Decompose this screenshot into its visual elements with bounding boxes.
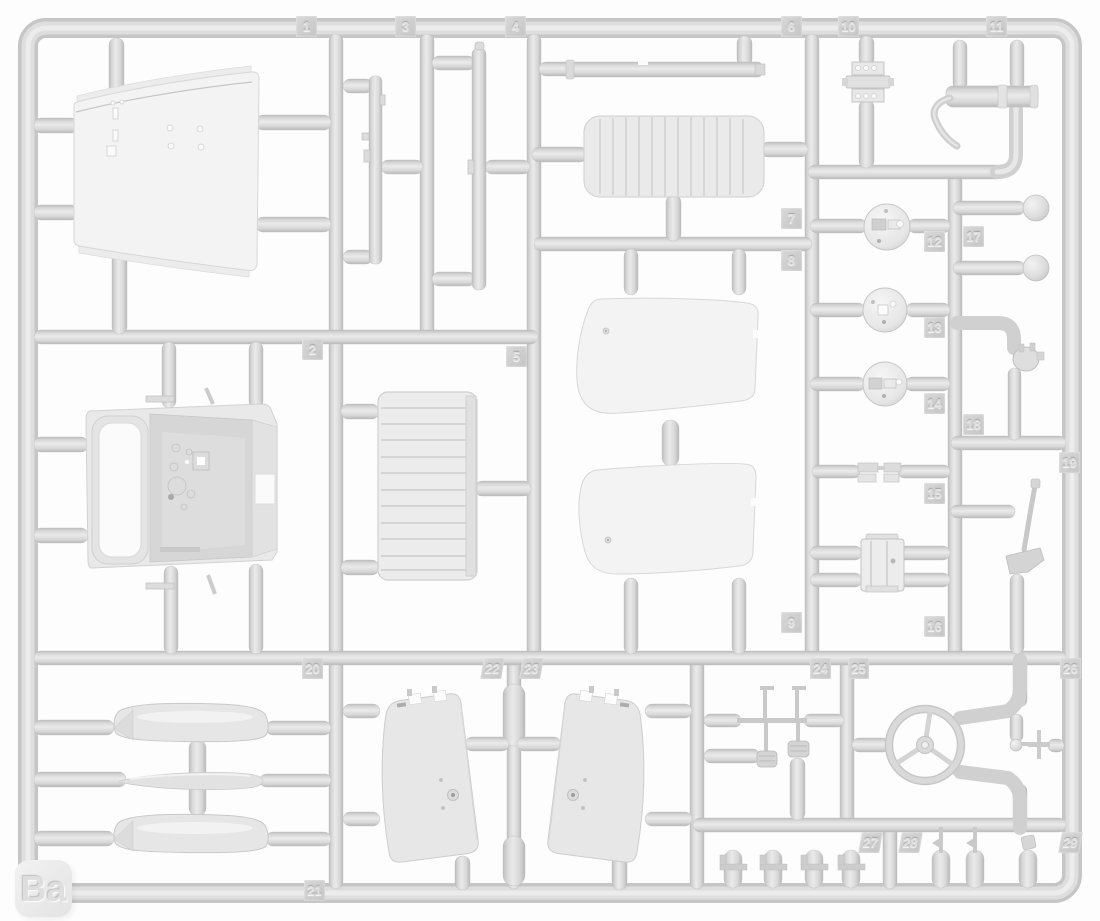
part-rod-and-tarp-roll (566, 60, 765, 197)
part-hinge-bracket (842, 62, 894, 102)
part-number-tag: 2 (302, 339, 323, 360)
part-number-tag: 26 (1060, 658, 1081, 679)
part-balls (1023, 195, 1049, 281)
part-fenders-springs (114, 703, 268, 852)
part-number-tag: 8 (781, 250, 802, 271)
part-number-tag: 21 (304, 880, 325, 901)
part-number-tag: 29 (1058, 832, 1083, 853)
part-number-tag: 7 (781, 208, 802, 229)
sprue-set-label: Ba (15, 860, 72, 917)
part-number-tag: 6 (781, 16, 802, 37)
part-number-tag: 13 (924, 317, 945, 338)
part-number-tag: 27 (858, 832, 883, 853)
sprue-photo: 1 3 4 6 10 11 7 8 9 12 17 13 14 18 15 16… (0, 0, 1100, 921)
part-number-tag: 1 (296, 16, 317, 37)
part-small-fittings (858, 463, 901, 482)
part-number-tag: 14 (924, 393, 945, 414)
part-number-tag: 3 (395, 16, 416, 37)
part-number-tag: 20 (302, 658, 323, 679)
part-number-tag: 22 (480, 658, 505, 679)
part-number-tag: 24 (810, 658, 831, 679)
part-number-tag: 25 (848, 658, 869, 679)
part-number-tag: 19 (1059, 452, 1080, 473)
part-number-tag: 28 (898, 832, 923, 853)
part-pedals (720, 850, 865, 888)
part-brake-lever (1006, 479, 1044, 574)
part-number-tag: 16 (924, 616, 945, 637)
part-number-tag: 18 (963, 414, 984, 435)
part-number-tag: 12 (924, 231, 945, 252)
windshield-opening (99, 423, 141, 557)
part-gearbox-block (861, 534, 904, 592)
part-slatted-panel (378, 392, 477, 580)
part-number-tag: 15 (924, 483, 945, 504)
part-hub-discs (863, 204, 910, 406)
part-number-tag: 10 (838, 16, 859, 37)
part-number-tag: 9 (781, 612, 802, 633)
part-number-tag: 23 (519, 658, 544, 679)
part-small-levers (932, 827, 1037, 888)
part-number-tag: 4 (505, 16, 526, 37)
part-number-tag: 17 (963, 226, 984, 247)
sprue-illustration (0, 0, 1100, 921)
part-number-tag: 5 (506, 346, 527, 367)
part-number-tag: 11 (986, 16, 1007, 37)
part-roof-panel (74, 66, 259, 277)
part-cab-body (86, 388, 277, 594)
